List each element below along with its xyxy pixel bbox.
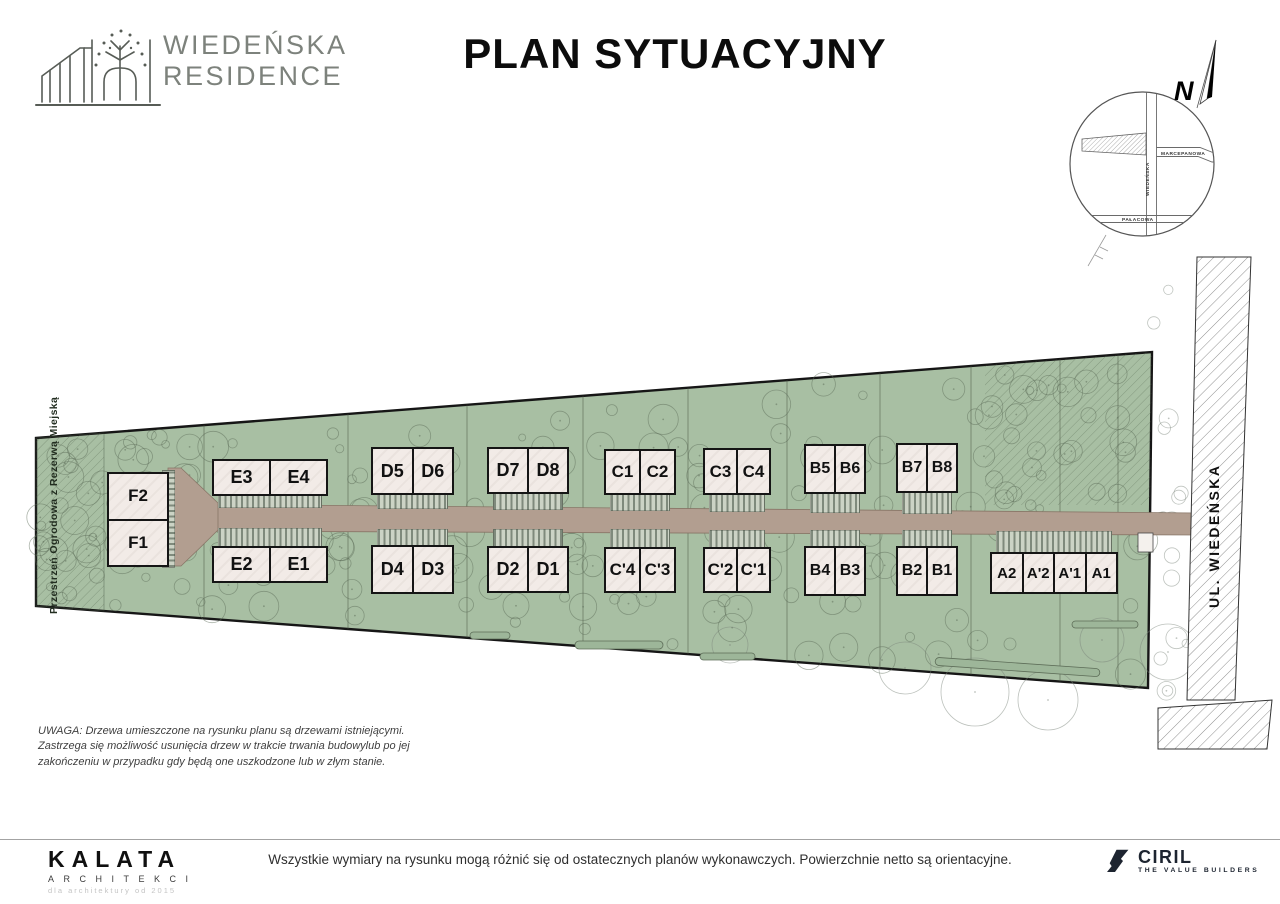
tree-center [46,559,48,561]
tree-center [43,541,45,543]
footer-disclaimer: Wszystkie wymiary na rysunku mogą różnić… [200,852,1080,867]
tree-center [974,691,976,693]
building-B2[interactable]: B2 [898,548,926,594]
street-strip-south [1158,700,1272,749]
driveway-strip [377,493,448,509]
tree-center [582,606,584,608]
tree-center [101,482,103,484]
building-B1[interactable]: B1 [926,548,956,594]
tree-center [576,563,578,565]
tree-center [977,640,979,642]
tree-center [662,419,664,421]
tree-center [1122,441,1124,443]
tree-center [1101,639,1103,641]
driveway-strip [902,491,952,514]
building-B5[interactable]: B5 [806,446,834,492]
tree-center [212,446,214,448]
building-A'1[interactable]: A'1 [1053,554,1085,592]
building-block-D4-D3: D4D3 [371,545,454,594]
tree-center [832,601,834,603]
tree-center [132,459,134,461]
building-D8[interactable]: D8 [527,449,567,492]
building-A'2[interactable]: A'2 [1022,554,1054,592]
tree-center [1168,418,1170,420]
tree-center [645,596,647,598]
ciril-name: CIRIL [1138,848,1259,866]
tree-center [904,667,906,669]
tree-center [884,565,886,567]
kalata-tagline: dla architektury od 2015 [48,886,198,895]
driveway-strip [709,493,765,512]
building-block-D5-D6: D5D6 [371,447,454,495]
building-block-A2-A'2-A'1-A1: A2A'2A'1A1 [990,552,1118,594]
tree-center [1047,699,1049,701]
tree-center [970,506,972,508]
tree-center [953,388,955,390]
ciril-logo-icon [1105,848,1131,874]
tree-center [419,435,421,437]
tree-center [1166,690,1168,692]
tree-center [1116,373,1118,375]
tree-center [39,517,41,519]
building-F1[interactable]: F1 [109,519,167,566]
driveway-strip [610,493,670,511]
tree-center [1067,391,1069,393]
tree-center [1071,450,1073,452]
tree-center [778,536,780,538]
tree-center [869,565,871,567]
tree-center [881,449,883,451]
garden-reserve-zone [36,433,104,611]
tree-center [515,605,517,607]
tree-center [881,659,883,661]
building-E4[interactable]: E4 [269,461,326,494]
driveway-strip [996,531,1112,554]
tree [1162,686,1173,697]
tree-center [883,504,885,506]
building-D7[interactable]: D7 [489,449,527,492]
tree-center [938,653,940,655]
building-C'2[interactable]: C'2 [705,549,736,591]
tree-center [1003,499,1005,501]
building-E2[interactable]: E2 [214,548,269,581]
tree [1174,486,1188,500]
tree [1148,317,1160,329]
building-block-F2-F1: F2F1 [107,472,169,567]
building-block-B2-B1: B2B1 [896,546,958,596]
building-C1[interactable]: C1 [606,451,639,493]
tree [1164,548,1179,563]
tree-center [1125,451,1127,453]
tree-center [714,611,716,613]
building-block-E3-E4: E3E4 [212,459,328,496]
building-C4[interactable]: C4 [736,450,769,493]
building-block-B5-B6: B5B6 [804,444,866,494]
kalata-subtitle: ARCHITEKCI [48,874,198,884]
tree-center [738,608,740,610]
tree-center [780,433,782,435]
building-C3[interactable]: C3 [705,450,736,493]
tree-center [263,605,265,607]
tree-center [991,406,993,408]
tree-center [1036,450,1038,452]
building-D6[interactable]: D6 [412,449,453,493]
building-D3[interactable]: D3 [412,547,453,592]
tree-center [600,445,602,447]
tree-center [124,449,126,451]
kalata-name: KALATA [48,846,198,873]
building-block-B4-B3: B4B3 [804,546,866,596]
tree-center [956,619,958,621]
tree-center [354,615,356,617]
driveway-strip [493,492,563,510]
tree-center [211,608,213,610]
building-A1[interactable]: A1 [1085,554,1117,592]
tree-center [74,520,76,522]
tree-center [699,455,701,457]
tree-center [228,584,230,586]
tree-center [95,535,97,537]
tree-center [65,560,67,562]
tree-center [628,603,630,605]
tree-center [68,476,70,478]
building-D2[interactable]: D2 [489,548,527,591]
ciril-tagline: THE VALUE BUILDERS [1138,867,1259,874]
tree-center [38,545,40,547]
building-B7[interactable]: B7 [898,445,926,491]
tree-center [571,547,573,549]
building-block-C1-C2: C1C2 [604,449,676,495]
tree-center [351,588,353,590]
tree [1164,285,1173,294]
building-C'4[interactable]: C'4 [606,549,639,591]
site-plan-page: WIEDEŃSKA RESIDENCE PLAN SYTUACYJNY MARC… [0,0,1280,904]
footer-divider [0,839,1280,840]
tree-center [1022,389,1024,391]
building-block-D2-D1: D2D1 [487,546,569,593]
tree-center [1086,381,1088,383]
ciril-logo: CIRIL THE VALUE BUILDERS [1105,848,1259,874]
building-C'3[interactable]: C'3 [639,549,674,591]
tree-center [1015,414,1017,416]
tree-center [189,446,191,448]
tree-center [1031,467,1033,469]
tree-center [1167,651,1169,653]
tree-center [729,644,731,646]
tree-center [88,555,90,557]
tree-center [1117,493,1119,495]
tree-center [677,446,679,448]
building-B4[interactable]: B4 [806,548,834,594]
tree [1154,652,1167,665]
utility-box [1138,533,1153,552]
tree-center [983,455,985,457]
tree-center [53,550,55,552]
tree-center [341,547,343,549]
building-C'1[interactable]: C'1 [736,549,769,591]
tree-center [843,646,845,648]
building-C2[interactable]: C2 [639,451,674,493]
building-block-E2-E1: E2E1 [212,546,328,583]
building-B3[interactable]: B3 [834,548,864,594]
building-E3[interactable]: E3 [214,461,269,494]
driveway-strip [810,492,860,513]
tree-center [988,414,990,416]
trees-note: UWAGA: Drzewa umieszczone na rysunku pla… [38,724,438,770]
building-block-C'2-C'1: C'2C'1 [703,547,771,593]
building-D4[interactable]: D4 [373,547,412,592]
tree-center [808,655,810,657]
tree-center [1004,374,1006,376]
building-F2[interactable]: F2 [109,474,167,519]
tree-center [1048,384,1050,386]
building-A2[interactable]: A2 [992,554,1022,592]
building-block-C3-C4: C3C4 [703,448,771,495]
tree-center [823,383,825,385]
tree-center [1176,637,1178,639]
tree-center [1005,492,1007,494]
tree-center [339,546,341,548]
tree-center [458,567,460,569]
driveway-strip [218,494,322,508]
street-strip [1187,257,1251,700]
tree-center [1117,417,1119,419]
tree-center [776,403,778,405]
tree-center [704,507,706,509]
building-B6[interactable]: B6 [834,446,864,492]
tree-center [87,493,89,495]
tree-center [592,565,594,567]
tree-center [77,448,79,450]
building-D5[interactable]: D5 [373,449,412,493]
building-block-D7-D8: D7D8 [487,447,569,494]
tree-center [1130,673,1132,675]
building-block-B7-B8: B7B8 [896,443,958,493]
tree [1164,570,1180,586]
tree-center [559,420,561,422]
kalata-logo: KALATA ARCHITEKCI dla architektury od 20… [48,846,198,895]
building-block-C'4-C'3: C'4C'3 [604,547,676,593]
tree-center [1064,453,1066,455]
building-D1[interactable]: D1 [527,548,567,591]
tree-center [86,548,88,550]
building-B8[interactable]: B8 [926,445,956,491]
building-E1[interactable]: E1 [269,548,326,581]
